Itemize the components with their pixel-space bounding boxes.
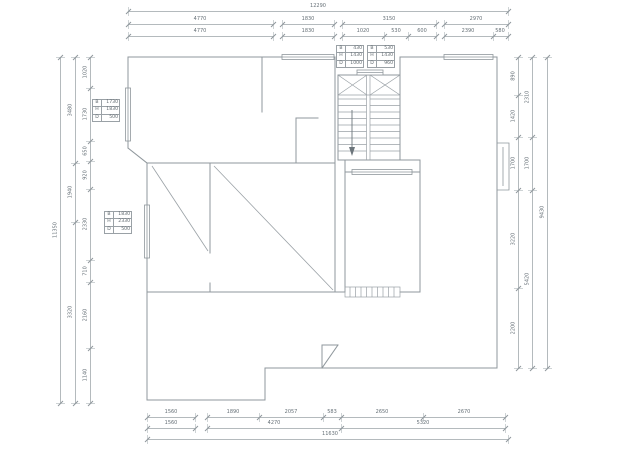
bay-window xyxy=(497,143,509,190)
staircase xyxy=(338,75,400,160)
stair-direction-arrow xyxy=(349,110,355,156)
hatched-window xyxy=(345,287,400,297)
floor-plan-canvas: 1229047701830315029704770183010205306002… xyxy=(0,0,630,450)
windows xyxy=(126,55,494,259)
void-diagonals xyxy=(152,166,333,290)
walls xyxy=(128,57,497,400)
floor-plan-drawing xyxy=(0,0,630,450)
